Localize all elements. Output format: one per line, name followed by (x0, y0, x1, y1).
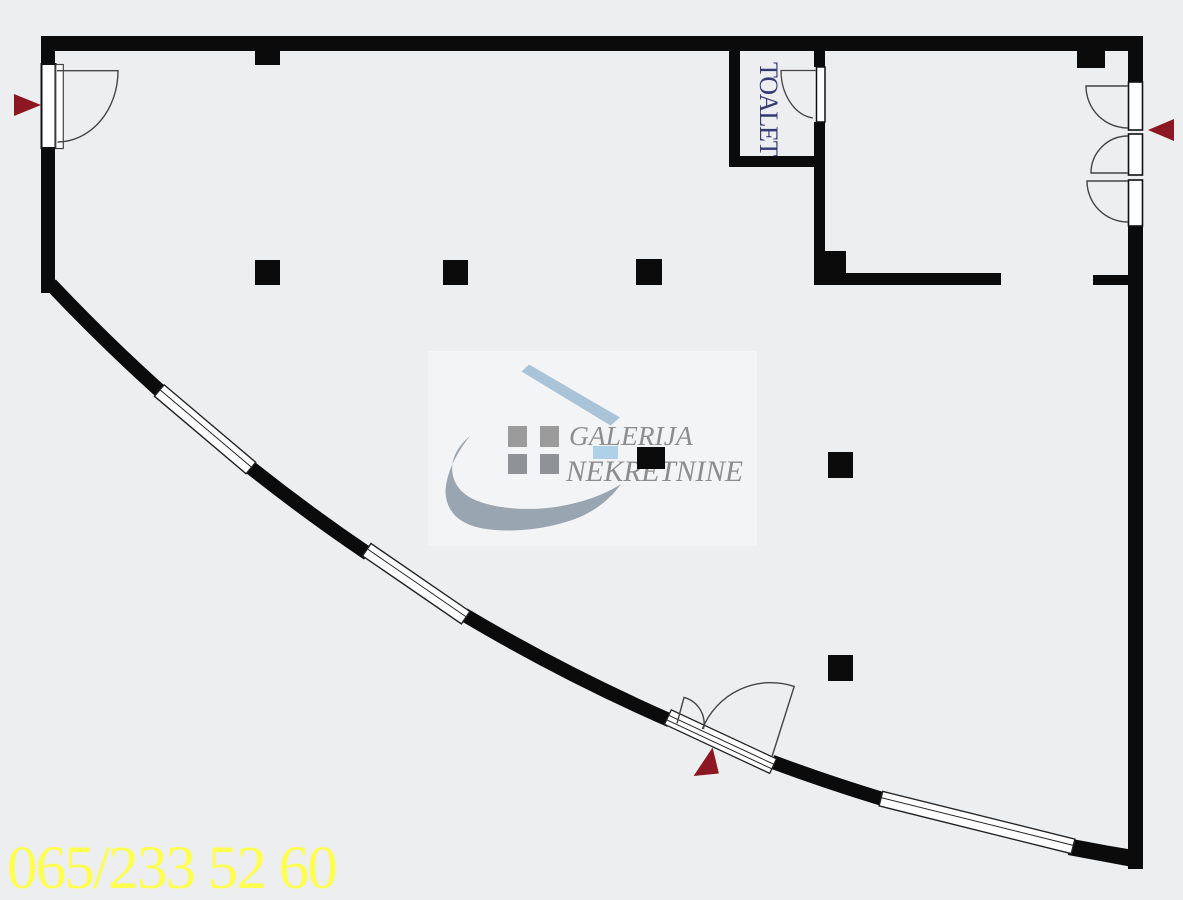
svg-text:065/233 52 60: 065/233 52 60 (7, 835, 336, 900)
svg-text:TOALET: TOALET (754, 62, 783, 157)
svg-text:GALERIJA: GALERIJA (569, 420, 693, 451)
